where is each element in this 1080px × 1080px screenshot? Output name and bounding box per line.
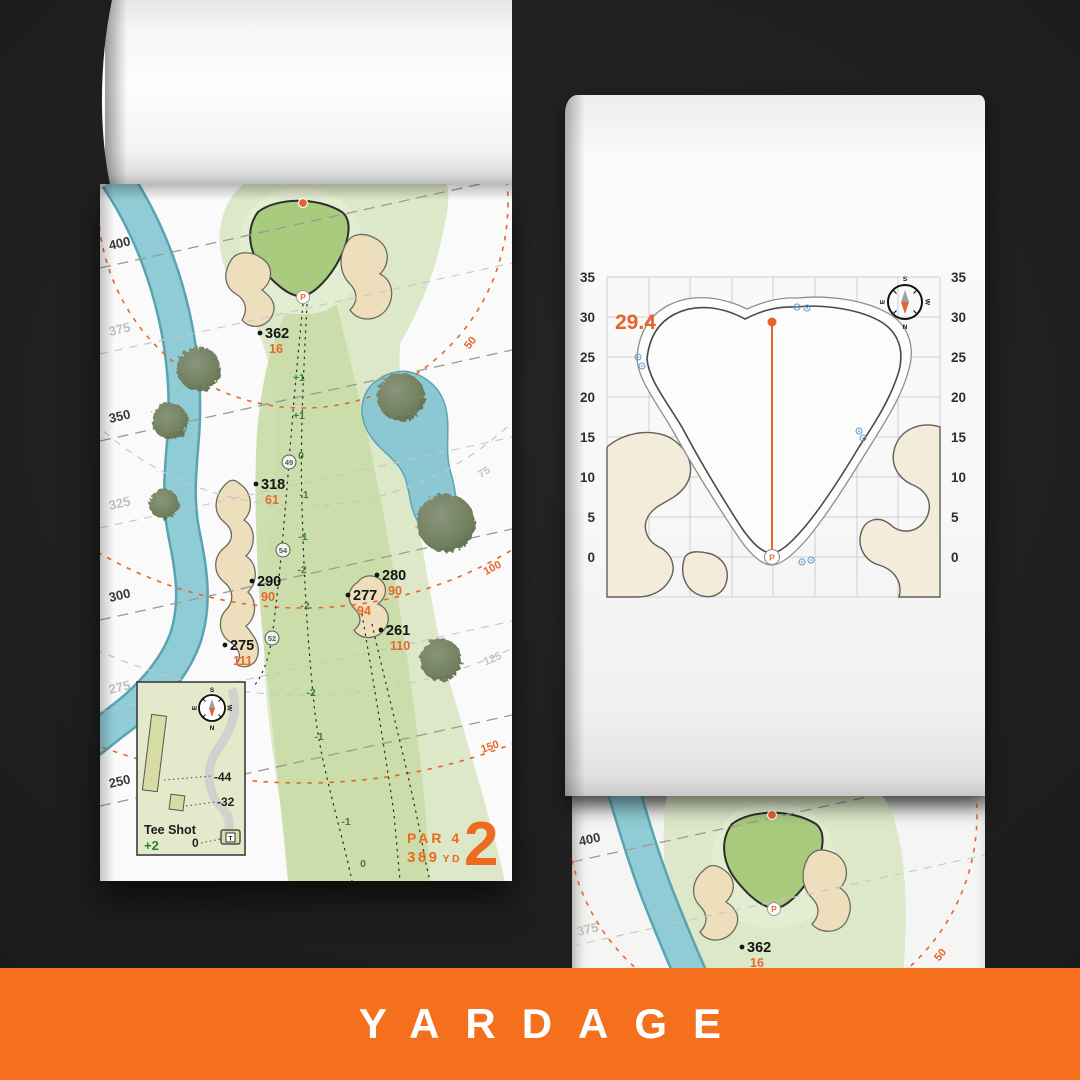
marker-distance: 280 xyxy=(382,568,406,584)
tick-label: 25 xyxy=(580,350,596,365)
tee-length-label: -44 xyxy=(214,770,232,784)
arc-label: 150 xyxy=(479,739,500,756)
arc-label: 125 xyxy=(482,650,504,668)
hole-map-graphic: 400 375 350 325 300 275 250 50 75 100 12… xyxy=(100,184,512,881)
stream xyxy=(100,184,192,744)
banner-title: YARDAGE xyxy=(359,1000,747,1048)
tick-label: 20 xyxy=(580,390,595,405)
arc-label: 100 xyxy=(482,559,504,578)
tick-label: 35 xyxy=(951,270,967,285)
marker-carry: 111 xyxy=(233,654,253,668)
next-hole-graphic: 400 375 50 P 362 16 xyxy=(572,796,985,976)
marker-carry: 16 xyxy=(269,342,283,356)
tee-icon: T xyxy=(221,830,240,844)
inset-title: Tee Shot xyxy=(144,823,197,837)
circled-distance-value: 49 xyxy=(285,458,293,467)
marker-distance: 318 xyxy=(261,477,285,493)
elevation-label: +1 xyxy=(293,372,305,384)
compass-s: S xyxy=(210,687,215,694)
marker-carry: 94 xyxy=(357,604,371,618)
marker-distance: 275 xyxy=(230,638,254,654)
flipped-cover-page xyxy=(95,0,512,184)
marker: 275 111 xyxy=(223,638,255,668)
hole-number: 2 xyxy=(464,810,498,879)
pin-dot xyxy=(768,811,777,820)
yard-label: 400 xyxy=(577,829,602,848)
pin-marker-letter: P xyxy=(769,553,775,563)
tee-length-label: -32 xyxy=(217,795,235,809)
elevation-label: -1 xyxy=(314,731,323,743)
compass-e: E xyxy=(192,705,199,710)
pin-dot xyxy=(299,199,308,208)
next-hole-page: 400 375 50 P 362 16 xyxy=(572,796,985,976)
tee-shot-score: +2 xyxy=(144,838,159,853)
compass-w: W xyxy=(226,705,233,712)
yard-label: 350 xyxy=(107,406,132,425)
tick-label: 30 xyxy=(951,310,966,325)
green-detail-graphic: 35 30 25 20 15 10 5 0 35 30 25 20 15 10 … xyxy=(565,95,985,796)
yardage-banner: YARDAGE xyxy=(0,968,1080,1080)
pin-marker-letter: P xyxy=(771,904,777,914)
compass-w: W xyxy=(924,299,931,306)
marker-carry: 90 xyxy=(388,584,402,598)
yardage-number: 389 xyxy=(407,849,440,866)
yard-label: 400 xyxy=(107,233,132,252)
tick-label: 5 xyxy=(951,510,959,525)
tick-label: 10 xyxy=(951,470,966,485)
marker-carry: 61 xyxy=(265,493,279,507)
tick-label: 15 xyxy=(951,430,967,445)
tick-label: 0 xyxy=(951,550,959,565)
marker-distance: 290 xyxy=(257,574,281,590)
tee-shot-inset: -44 -32 0 Tee Shot +2 T S N W xyxy=(137,682,245,855)
elevation-label: -1 xyxy=(341,816,350,828)
compass-e: E xyxy=(880,299,887,304)
elevation-label: -2 xyxy=(306,687,315,699)
tee-box-short xyxy=(169,794,185,811)
pin-distance: 29.4 xyxy=(615,311,656,334)
tick-label: 5 xyxy=(587,510,595,525)
pin-marker-letter: P xyxy=(300,292,306,302)
yard-label: 375 xyxy=(107,319,132,338)
arc-label: 50 xyxy=(932,947,949,964)
tick-label: 10 xyxy=(580,470,595,485)
tick-label: 0 xyxy=(587,550,595,565)
tee-length-label: 0 xyxy=(192,836,199,850)
compass-n: N xyxy=(210,725,215,732)
elevation-label: +1 xyxy=(293,410,305,422)
compass-n: N xyxy=(903,324,908,331)
elevation-label: -1 xyxy=(299,489,308,501)
elevation-label: -2 xyxy=(300,600,309,612)
tick-label: 30 xyxy=(580,310,595,325)
hole-map-page: 400 375 350 325 300 275 250 50 75 100 12… xyxy=(100,184,512,881)
tree xyxy=(417,494,475,552)
yard-label: 325 xyxy=(107,493,132,512)
tick-label: 20 xyxy=(951,390,966,405)
marker-distance: 277 xyxy=(353,588,377,604)
marker-distance: 362 xyxy=(265,326,289,342)
tick-label: 15 xyxy=(580,430,596,445)
arc-label: 75 xyxy=(476,464,493,481)
yardage-unit: YD xyxy=(443,853,463,865)
yard-label: 375 xyxy=(575,919,600,938)
tick-label: 25 xyxy=(951,350,967,365)
yard-label: 250 xyxy=(107,771,132,790)
pin-dot xyxy=(768,318,777,327)
circled-distance-value: 52 xyxy=(268,634,276,643)
elevation-label: -1 xyxy=(298,531,307,543)
axis-ticks-left: 35 30 25 20 15 10 5 0 xyxy=(580,270,596,565)
circled-distance-value: 54 xyxy=(279,546,288,555)
marker-carry: 110 xyxy=(390,639,410,653)
tick-label: 35 xyxy=(580,270,596,285)
elevation-label: 0 xyxy=(360,858,366,870)
axis-ticks-right: 35 30 25 20 15 10 5 0 xyxy=(951,270,967,565)
marker-carry: 90 xyxy=(261,590,275,604)
circled-distance: 54 xyxy=(276,543,290,557)
yard-label: 300 xyxy=(107,585,132,604)
compass-s: S xyxy=(903,276,908,283)
tree xyxy=(149,489,179,519)
tree xyxy=(377,373,425,421)
elevation-label: -2 xyxy=(297,564,306,576)
tee-icon-letter: T xyxy=(229,836,233,843)
mockup-stage: 400 375 350 325 300 275 250 50 75 100 12… xyxy=(0,0,1080,1080)
elevation-label: 0 xyxy=(298,450,304,462)
tree xyxy=(177,347,221,391)
tree xyxy=(420,639,462,681)
circled-distance: 52 xyxy=(265,631,279,645)
green-detail-page: 35 30 25 20 15 10 5 0 35 30 25 20 15 10 … xyxy=(565,95,985,796)
tree xyxy=(152,403,188,439)
marker-distance: 261 xyxy=(386,623,410,639)
arc-label: 50 xyxy=(462,335,479,352)
par-label: PAR 4 xyxy=(407,830,462,846)
marker-distance: 362 xyxy=(747,940,771,956)
circled-distance: 49 xyxy=(282,455,296,469)
